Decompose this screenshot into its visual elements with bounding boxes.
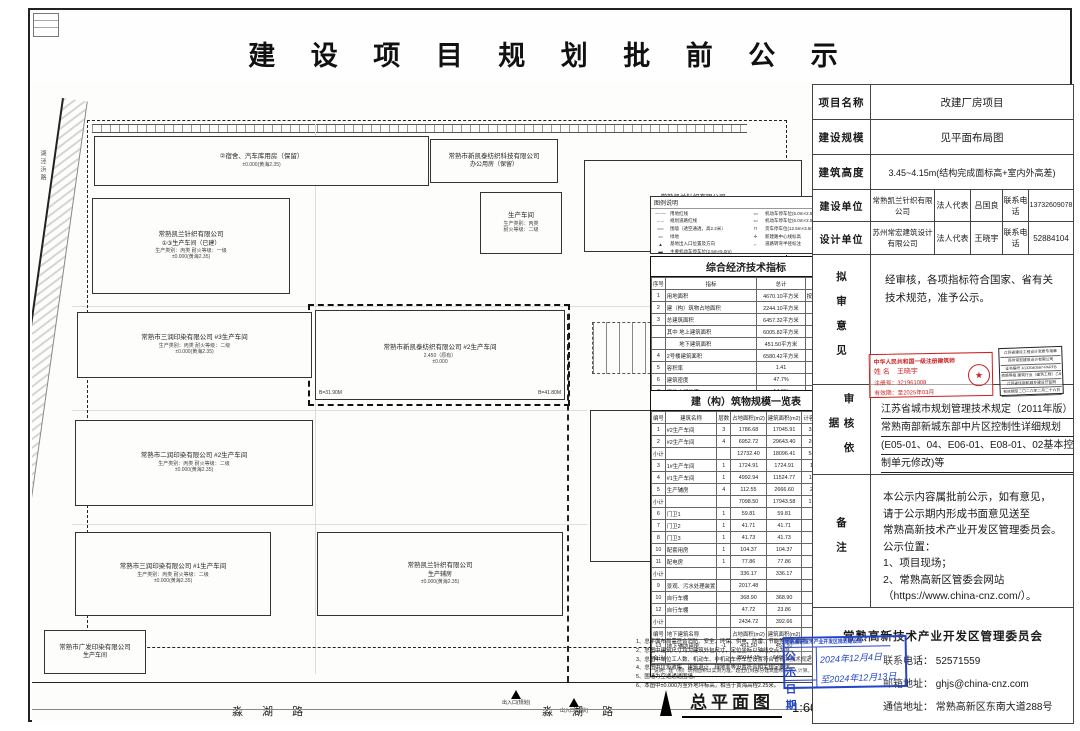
remark-line: （https://www.china-cnz.com/）。 — [883, 588, 1067, 605]
footer-addr-label: 通信地址： — [883, 702, 933, 713]
row-builder: 建设单位 常熟凯兰针织有限公司 法人代表 吕国良 联系电话 1373260907… — [813, 190, 1073, 222]
building-elevation: 耐火等级：二级 — [503, 227, 538, 234]
designer-name: 苏州常宏建筑设计有限公司 — [871, 222, 935, 254]
notice-sheet: 建 设 项 目 规 划 批 前 公 示 ②宿舍、汽车库用房（保留） ±0.000… — [28, 8, 1072, 722]
legend-label: 基地出入口位置及方向 — [670, 241, 715, 247]
table-row: 12 自行车棚 47.72 23.86 — [652, 604, 813, 616]
table-row: 5 生产辅房 4 112.55 2666.60 2699.90 — [652, 484, 813, 496]
build-height-label: 建筑高度 — [813, 155, 871, 189]
row-project-name: 项目名称 改建厂房项目 — [813, 85, 1073, 120]
building-header-cell: 层数 — [717, 412, 731, 424]
basis-line: 江苏省城市规划管理技术规定（2011年版） — [881, 403, 1073, 419]
building-elevation: ±0.000(黄海2.35) — [175, 467, 213, 474]
remark-line: 常熟高新技术产业开发区管理委员会。 — [883, 522, 1067, 539]
red-stamp-name: 姓 名 王晓宇 — [874, 365, 966, 377]
legend-symbol: ▭ — [653, 234, 668, 240]
remark-line: 公示位置： — [883, 539, 1067, 556]
table-row: 6 建筑密度 47.7% — [652, 374, 813, 386]
basis-line: 制单元修改)等 — [881, 457, 1073, 473]
legend-title: 图例说明 — [651, 197, 812, 209]
build-scale-value: 见平面布局图 — [871, 120, 1073, 154]
legend-label: 新建路中心线标高 — [765, 234, 801, 240]
table-row: 10 自行车棚 368.90 368.90 拟保留、雨棚等 — [652, 592, 813, 604]
building: 常熟市新凯泰纺织科技有限公司 办公用房（保留） — [430, 139, 558, 183]
table-row: 1 #2生产车间 3 1786.68 17045.91 33296.98 已建 — [652, 424, 813, 436]
building-label: 常熟凯兰针织有限公司 — [159, 231, 224, 240]
legend-item: ▭ 机动车停车位(6.0m×2.5m)平行式 — [748, 218, 812, 226]
economic-header-cell: 序号 — [652, 278, 666, 290]
build-scale-label: 建设规模 — [813, 120, 871, 154]
architect-registration-stamp: 中华人民共和国一级注册建筑师 姓 名 王晓宇 注册号：321961008 有效期… — [869, 352, 994, 398]
building-elevation: ±0.000(黄海2.35) — [175, 349, 213, 356]
table-row: 3 总建筑面积 6457.32平方米 — [652, 314, 813, 326]
building-header-cell: 建筑名称 — [665, 412, 717, 424]
basis-lines: 江苏省城市规划管理技术规定（2011年版）常熟南部新城东部中片区控制性详细规划(… — [871, 385, 1080, 474]
red-stamp-number: 注册号：321961008 — [874, 376, 966, 387]
boundary-vertical — [567, 314, 569, 682]
row-build-height: 建筑高度 3.45~4.15m(结构完成面标高+室内外高差) — [813, 155, 1073, 190]
legend-item: ▭ 绿地 — [653, 233, 744, 241]
legend-label: 主要机动车停车位(2.5m×5.0m) — [670, 249, 732, 255]
road-name: 淼 湖 路 — [232, 703, 311, 719]
builder-label: 建设单位 — [813, 190, 871, 221]
legend-right-column: ▭ 机动车停车位(5.0m×2.5m)垂直式 ▭ 机动车停车位(6.0m×2.5… — [746, 209, 812, 257]
legend-label: 围墙（透空通透，高2.2米） — [670, 226, 726, 232]
building-label: 常熟市新凯泰纺织科技有限公司 — [449, 153, 540, 162]
designer-rep: 王晓宇 — [971, 222, 1003, 254]
building-header-cell: 占地面积(m2) — [731, 412, 767, 424]
site-plan: ②宿舍、汽车库用房（保留） ±0.000(黄海2.35) 常熟市新凯泰纺织科技有… — [32, 84, 812, 724]
north-arrow-icon — [660, 690, 672, 716]
footer-tel: 联系电话： 52571559 — [883, 652, 1073, 667]
table-row: 7 门卫2 1 41.71 41.71 41.71 — [652, 520, 813, 532]
building-elevation: ±0.000(黄海2.35) — [172, 254, 210, 261]
building: 生产车间 生产类别：丙类 耐火等级：二级 — [480, 192, 562, 254]
road-name: 淼 湖 路 — [542, 703, 621, 719]
economic-table-header: 序号指标总计备注 — [652, 278, 813, 290]
table-row: 5 容积率 1.41 — [652, 362, 813, 374]
row-basis: 审核依据 江苏省城市规划管理技术规定（2011年版）常熟南部新城东部中片区控制性… — [813, 385, 1073, 475]
builder-rep: 吕国良 — [971, 190, 1003, 221]
row-remark: 备注 本公示内容属批前公示，如有意见，请于公示期内形成书面意见送至常熟高新技术产… — [813, 475, 1073, 608]
building-label: 常熟市三润印染有限公司 #1生产车间 — [120, 563, 227, 572]
design-qualification-stamp: 江苏省建设工程设计资质专用章苏州常宏建筑设计有限公司证书编号 A13204059… — [998, 346, 1064, 396]
plan-name: 总平面图 — [682, 688, 782, 718]
row-designer: 设计单位 苏州常宏建筑设计有限公司 法人代表 王晓宇 联系电话 52884104 — [813, 222, 1073, 255]
builder-tel: 13732609078 — [1029, 190, 1073, 221]
building: 常熟凯兰针织有限公司 ①③生产车间（已建） 生产类别：丙类 耐火等级：一级 ±0… — [92, 198, 290, 294]
opinion-text: 经审核，各项指标符合国家、省有关技术规范，准予公示。 — [871, 255, 1073, 307]
building: 常熟市广发印染有限公司 生产车间 — [44, 630, 146, 674]
footer-addr: 通信地址： 常熟高新区东南大道288号 — [883, 698, 1073, 713]
building-width-note: B=41.80M — [538, 390, 561, 397]
table-row: 2 #2生产车间 4 6952.72 29643.40 26957.97 已建 — [652, 436, 813, 448]
building: 常熟市二润印染有限公司 #2生产车间 生产类别：丙类 耐火等级：二级 ±0.00… — [75, 420, 313, 506]
blue-stamp-label-riqi: 日 期 — [785, 681, 817, 714]
building-spec: 2.450（原有） — [424, 353, 457, 360]
west-road-name: 湖泾浜路 — [38, 150, 47, 182]
building-label: 常熟市新凯泰纺织有限公司 #2生产车间 — [383, 344, 496, 353]
table-row: 6 门卫1 1 59.81 59.81 59.81 — [652, 508, 813, 520]
building: 常熟市三润印染有限公司 #3生产车间 生产类别：丙类 耐火等级：二级 ±0.00… — [77, 312, 312, 378]
blue-stamp-date-end: 至2024年12月13日 — [817, 664, 906, 689]
building-sublabel: 生产辅房 — [428, 571, 452, 579]
building-table-body: 1 #2生产车间 3 1786.68 17045.91 33296.98 已建 … — [652, 424, 813, 664]
legend-label: 道路转弯半径标注 — [765, 241, 801, 247]
legend-item: —·— 用地红线 — [653, 210, 744, 218]
building-schedule-table: 建（构）筑物规模一览表 编号建筑名称层数占地面积(m2)建筑面积(m2)计容面积… — [650, 390, 812, 677]
table-row: 地下建筑面积 451.50平方米 — [652, 338, 813, 350]
legend-label: 用地红线 — [670, 211, 688, 217]
footer-email-value: ghjs@china-cnz.com — [936, 679, 1029, 690]
building-elevation: ±0.000 — [432, 359, 447, 366]
red-stamp-validity: 有效期：至2025年03月 — [874, 386, 966, 397]
table-row: 2 建（构）筑物占地面积 2244.10平方米 — [652, 302, 813, 314]
building-label: ②宿舍、汽车库用房（保留） — [220, 153, 304, 162]
build-height-value: 3.45~4.15m(结构完成面标高+室内外高差) — [871, 155, 1073, 189]
legend-item: ✛ 新建路中心线标高 — [748, 233, 812, 241]
economic-header-cell: 指标 — [665, 278, 757, 290]
legend-item: ══ 围墙（透空通透，高2.2米） — [653, 225, 744, 233]
building-spec: ±0.000(黄海2.35) — [242, 162, 280, 169]
blue-stamp-label-gongshi: 公 示 — [785, 648, 817, 682]
project-name-value: 改建厂房项目 — [871, 85, 1073, 119]
legend-label: 规划道路红线 — [670, 218, 697, 224]
building-label: 常熟凯兰针织有限公司 — [408, 562, 473, 571]
red-seal-icon: ★ — [968, 364, 990, 386]
remark-line: 本公示内容属批前公示，如有意见， — [883, 489, 1067, 506]
table-row: 10 配套用房 1 104.37 104.37 104.37 — [652, 544, 813, 556]
building-width-note: B=31.90M — [319, 390, 342, 397]
building: 常熟市三润印染有限公司 #1生产车间 生产类别：丙类 耐火等级：二级 ±0.00… — [75, 532, 271, 616]
building: 常熟凯兰针织有限公司 生产辅房 ±0.000(黄海2.35) — [317, 532, 563, 616]
legend-item: ⊓ 货车停车位(12.5m×3.5m) — [748, 225, 812, 233]
building-sublabel: 生产车间 — [83, 652, 107, 660]
building-table-header: 编号建筑名称层数占地面积(m2)建筑面积(m2)计容面积(m2)备注 — [652, 412, 813, 424]
legend-label: 绿地 — [670, 234, 679, 240]
legend-item: ▭ 机动车停车位(5.0m×2.5m)垂直式 — [748, 210, 812, 218]
table-row: 11 配电房 1 77.86 77.86 77.86 — [652, 556, 813, 568]
legend-box: 图例说明 —·— 用地红线 – – 规划道路红线 ══ 围墙（透空通透，高2.2… — [650, 196, 812, 254]
legend-label: 机动车停车位(5.0m×2.5m)垂直式 — [765, 211, 812, 217]
basis-label: 审核依据 — [813, 385, 871, 474]
remark-line: 2、常熟高新区管委会网站 — [883, 572, 1067, 589]
footer-addr-value: 常熟高新区东南大道288号 — [936, 702, 1053, 713]
row-build-scale: 建设规模 见平面布局图 — [813, 120, 1073, 155]
table-row: 8 门卫3 1 41.73 41.73 41.73 变动不批 — [652, 532, 813, 544]
legend-symbol: ▲ — [653, 242, 668, 247]
building: ②宿舍、汽车库用房（保留） ±0.000(黄海2.35) — [94, 136, 429, 186]
page-title: 建 设 项 目 规 划 批 前 公 示 — [30, 34, 1070, 73]
designer-label: 设计单位 — [813, 222, 871, 254]
designer-tel: 52884104 — [1029, 222, 1073, 254]
builder-rep-label: 法人代表 — [935, 190, 971, 221]
remark-lines: 本公示内容属批前公示，如有意见，请于公示期内形成书面意见送至常熟高新技术产业开发… — [871, 475, 1073, 607]
building-label: 生产车间 — [508, 212, 534, 221]
footer-tel-value: 52571559 — [936, 656, 981, 667]
legend-symbol: ══ — [653, 226, 668, 231]
building-elevation: ±0.000(黄海2.35) — [154, 578, 192, 585]
legend-item: ⌐ 道路转弯半径标注 — [748, 240, 812, 248]
economic-table-title: 综合经济技术指标 — [651, 257, 812, 277]
building-table-title: 建（构）筑物规模一览表 — [651, 391, 812, 411]
legend-label: 机动车停车位(6.0m×2.5m)平行式 — [765, 218, 812, 224]
footer-email: 邮箱地址： ghjs@china-cnz.com — [883, 675, 1073, 690]
info-panel: 项目名称 改建厂房项目 建设规模 见平面布局图 建筑高度 3.45~4.15m(… — [812, 84, 1074, 724]
legend-item: ▲ 基地出入口位置及方向 — [653, 240, 744, 248]
table-row: 小计 12732.40 18096.41 54314.87 — [652, 448, 813, 460]
remark-label: 备注 — [813, 475, 871, 607]
legend-symbol: ✛ — [748, 234, 763, 240]
legend-left-column: —·— 用地红线 – – 规划道路红线 ══ 围墙（透空通透，高2.2米） ▭ … — [651, 209, 746, 257]
basis-line: (E05-01、04、E06-01、E08-01、02基本控 — [881, 439, 1073, 455]
designer-tel-label: 联系电话 — [1003, 222, 1029, 254]
legend-symbol: ⊓ — [748, 226, 763, 232]
table-row: 小计 2434.72 392.66 － — [652, 616, 813, 628]
builder-name: 常熟凯兰针织有限公司 — [871, 190, 935, 221]
red-stamp-title: 中华人民共和国一级注册建筑师 — [874, 355, 966, 366]
table-row: 9 景观、污水处理装置 2017.48 — [652, 580, 813, 592]
legend-item: – – 规划道路红线 — [653, 218, 744, 226]
public-notice-date-stamp: 常熟高新技术产业开发区规划建设局 公 示 日 期 2024年12月4日 至202… — [783, 635, 908, 689]
economic-header-cell: 总计 — [757, 278, 805, 290]
legend-label: 货车停车位(12.5m×3.5m) — [765, 226, 812, 232]
table-row: 3 1#生产车间 1 1724.91 1724.91 1724.91 — [652, 460, 813, 472]
table-row: 小计 7098.50 17943.58 17947.98 — [652, 496, 813, 508]
opinion-label: 拟审意见 — [813, 255, 871, 384]
table-row: 小计 336.17 336.17 336.17 — [652, 568, 813, 580]
designer-rep-label: 法人代表 — [935, 222, 971, 254]
building-header-cell: 建筑面积(m2) — [766, 412, 802, 424]
building-label: 常熟市二润印染有限公司 #2生产车间 — [141, 452, 248, 461]
building-sublabel: 办公用房（保留） — [470, 161, 518, 169]
building-header-cell: 编号 — [652, 412, 666, 424]
legend-symbol: ▭ — [748, 211, 763, 217]
legend-symbol: —·— — [653, 211, 668, 216]
building-label: 常熟市广发印染有限公司 — [59, 644, 131, 653]
building-elevation: ±0.000(黄海2.35) — [421, 579, 459, 586]
project-name-label: 项目名称 — [813, 85, 871, 119]
remark-line: 请于公示期内形成书面意见送至 — [883, 506, 1067, 523]
legend-symbol: – – — [653, 219, 668, 224]
table-row: 4 2号楼建筑面积 6580.42平方米 — [652, 350, 813, 362]
legend-symbol: ▭ — [748, 218, 763, 224]
economic-header-cell: 备注 — [805, 278, 812, 290]
legend-symbol: ▬ — [653, 249, 668, 254]
building-sublabel: ①③生产车间（已建） — [162, 240, 221, 248]
building-header-cell: 计容面积(m2) — [802, 412, 812, 424]
remark-line: 1、项目现场； — [883, 555, 1067, 572]
table-row: 4 #1生产车间 1 4992.94 11524.77 11524.77 已在产… — [652, 472, 813, 484]
table-row: 其中 地上建筑面积 6005.82平方米 — [652, 326, 813, 338]
building: 常熟市新凯泰纺织有限公司 #2生产车间 2.450（原有） ±0.000 B=3… — [315, 310, 565, 400]
basis-line: 常熟南部新城东部中片区控制性详细规划 — [881, 421, 1073, 437]
table-row: 1 用地面积 4670.10平方米 按地形图计算 — [652, 290, 813, 302]
builder-tel-label: 联系电话 — [1003, 190, 1029, 221]
legend-symbol: ⌐ — [748, 242, 763, 247]
building-label: 常熟市三润印染有限公司 #3生产车间 — [141, 334, 248, 343]
legend-item: ▬ 主要机动车停车位(2.5m×5.0m) — [653, 248, 744, 256]
